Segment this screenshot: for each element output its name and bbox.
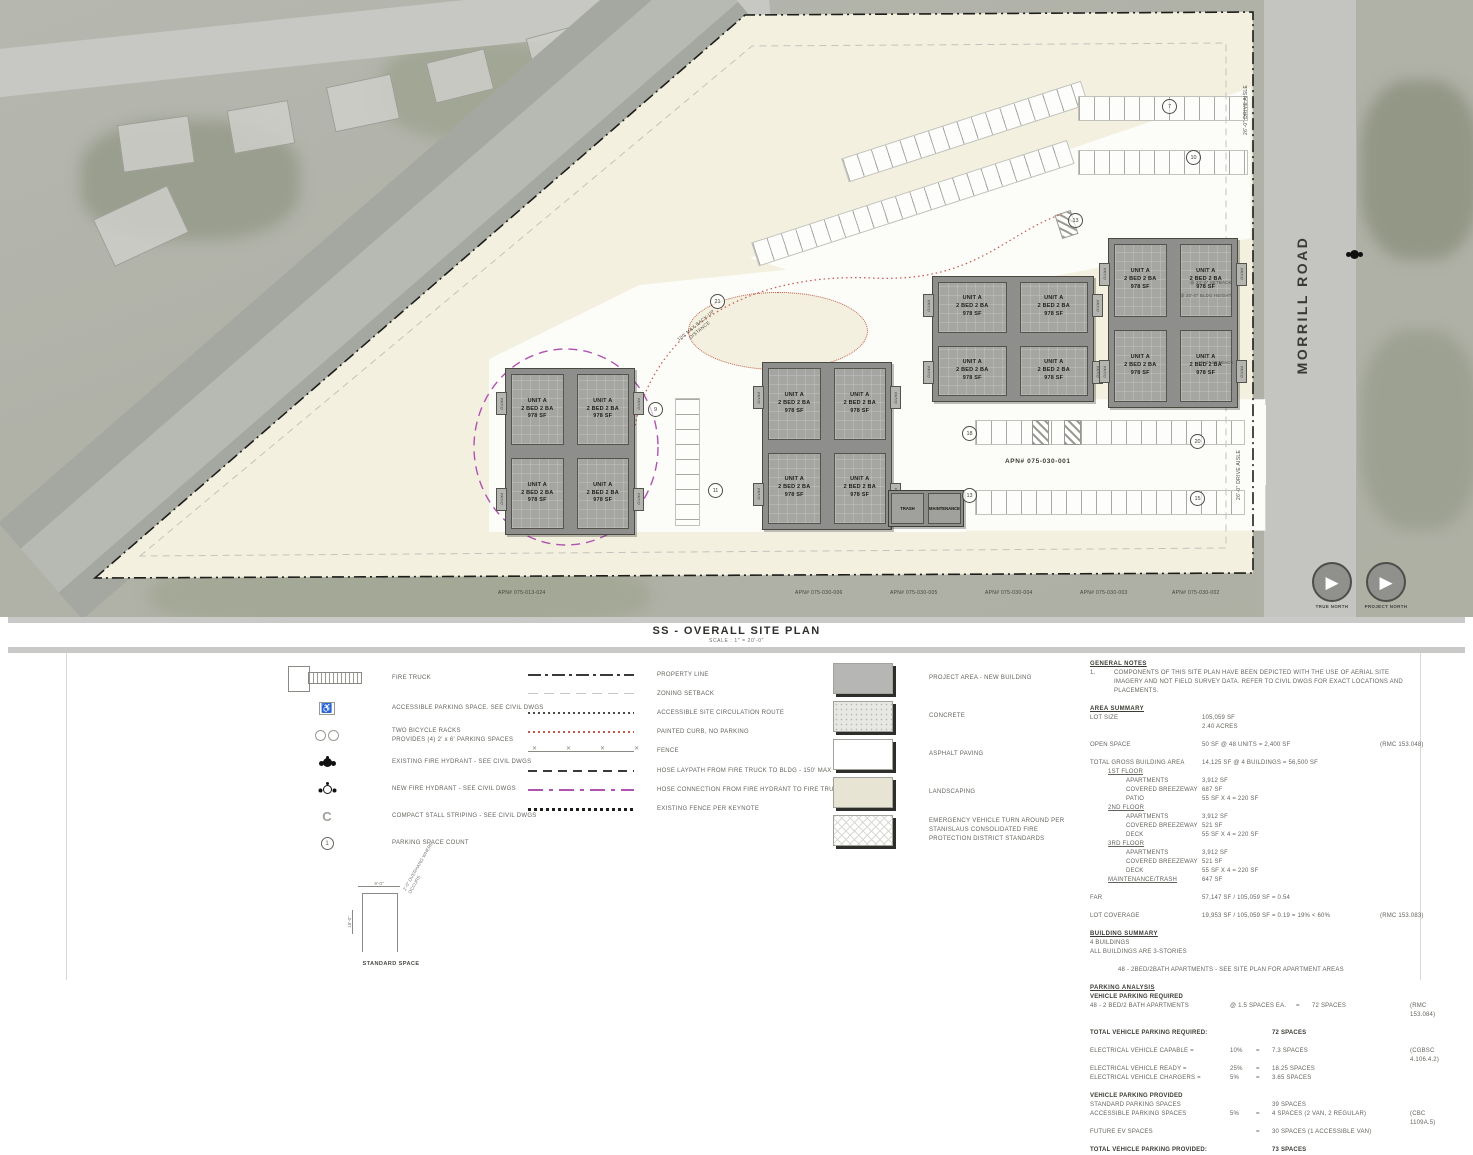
legend-line-label: ACCESSIBLE SITE CIRCULATION ROUTE <box>657 710 784 716</box>
row-label: LOT COVERAGE <box>1090 912 1202 921</box>
row-eq: = <box>1256 1110 1272 1119</box>
legend-hatch-swatch <box>833 663 893 694</box>
area-summary-row: FAR 57,147 SF / 105,059 SF = 0.54 <box>1090 894 1430 903</box>
unit-name: UNIT A <box>1131 268 1150 276</box>
row-label: APARTMENTS <box>1126 777 1202 786</box>
legend-line-sample <box>528 727 634 737</box>
legend-hatch-label: LANDSCAPING <box>929 788 975 797</box>
unit-name: UNIT A <box>785 476 804 484</box>
trash-maintenance-building: TRASH MAINTENANCE <box>888 490 964 527</box>
unit-area: 978 SF <box>1196 370 1215 378</box>
title-strip: SS - OVERALL SITE PLAN SCALE : 1" = 20'-… <box>0 617 1473 653</box>
parking-count-badge: 11 <box>708 483 723 498</box>
true-north-arrow: ▶ TRUE NORTH <box>1308 562 1356 609</box>
unit-area: 978 SF <box>593 413 612 421</box>
stall-outline <box>362 893 398 952</box>
total-label: TOTAL VEHICLE PARKING PROVIDED: <box>1090 1146 1272 1155</box>
apn-parcel-label: APN# 075-030-003 <box>1080 590 1128 596</box>
unit-beds: 2 BED 2 BA <box>587 490 619 498</box>
row-label: 48 - 2 BED/2 BATH APARTMENTS <box>1090 1002 1230 1011</box>
site-plan: PATIO PATIO PATIO PATIO UNIT A2 BED 2 BA… <box>0 0 1473 617</box>
row-label: APARTMENTS <box>1126 849 1202 858</box>
patio-tab: PATIO <box>496 392 507 415</box>
parking-count-badge: 13 <box>1068 213 1083 228</box>
row-eq: = <box>1256 1128 1272 1137</box>
legend-line-label: EXISTING FENCE PER KEYNOTE <box>657 806 759 812</box>
row-label: APARTMENTS <box>1126 813 1202 822</box>
parking-count-badge: 15 <box>1190 491 1205 506</box>
legend-symbol-label: FIRE TRUCK <box>392 674 431 683</box>
building-summary-line: 4 BUILDINGS <box>1090 939 1430 948</box>
legend-hatch-swatch <box>833 739 893 770</box>
row-label: ELECTRICAL VEHICLE READY = <box>1090 1065 1230 1074</box>
row-value: 72 SPACES <box>1312 1002 1410 1011</box>
legend-symbol-icon <box>288 782 366 798</box>
area-summary-heading: AREA SUMMARY <box>1090 705 1430 714</box>
apn-parcel-label: APN# 075-030-004 <box>985 590 1033 596</box>
legend-hatch-label: CONCRETE <box>929 712 965 721</box>
legend-hatch-swatch <box>833 815 893 846</box>
north-arrow-icon: ▶ <box>1366 562 1406 602</box>
legend-line-sample <box>528 785 634 795</box>
apn-parcel-label: APN# 075-030-006 <box>795 590 843 596</box>
row-label: DECK <box>1126 867 1202 876</box>
parking-count-badge: 21 <box>710 294 725 309</box>
unit-area: 978 SF <box>963 375 982 383</box>
area-summary-row: DECK 55 SF X 4 = 220 SF <box>1090 831 1430 840</box>
title-rule-top <box>8 617 1465 623</box>
row-label: TOTAL GROSS BUILDING AREA <box>1090 759 1202 768</box>
apartment-unit: UNIT A2 BED 2 BA978 SF <box>577 458 630 529</box>
driveway-entrance <box>1248 405 1266 485</box>
legend-hatch-swatch <box>833 777 893 808</box>
legend-line-row: HOSE LAYPATH FROM FIRE TRUCK TO BLDG - 1… <box>528 761 873 780</box>
apartment-unit: UNIT A2 BED 2 BA978 SF <box>834 368 887 440</box>
legend-area: FIRE TRUCK ACCESSIBLE PARKING SPACE. SEE… <box>0 653 1473 986</box>
unit-beds: 2 BED 2 BA <box>778 484 810 492</box>
row-value: 55 SF X 4 = 220 SF <box>1202 795 1380 804</box>
legend-line-row: PAINTED CURB, NO PARKING <box>528 723 873 742</box>
project-north-label: PROJECT NORTH <box>1362 604 1410 609</box>
row-label: ELECTRICAL VEHICLE CHARGERS = <box>1090 1074 1230 1083</box>
legend-line-label: PROPERTY LINE <box>657 672 709 678</box>
unit-beds: 2 BED 2 BA <box>1038 367 1070 375</box>
parking-row: FUTURE EV SPACES = 30 SPACES (1 ACCESSIB… <box>1090 1128 1430 1137</box>
unit-area: 978 SF <box>850 408 869 416</box>
sheet-border-left <box>66 653 67 980</box>
building-4: PATIO PATIO PATIO PATIO UNIT A2 BED 2 BA… <box>1108 238 1238 408</box>
legend-line-sample <box>528 708 634 718</box>
unit-beds: 2 BED 2 BA <box>1124 362 1156 370</box>
apartment-unit: UNIT A2 BED 2 BA978 SF <box>768 453 821 525</box>
sheet-title: SS - OVERALL SITE PLAN <box>0 625 1473 637</box>
row-code: (CBC 1109A.5) <box>1410 1110 1436 1128</box>
unit-name: UNIT A <box>1044 295 1063 303</box>
parking-provided-table: STANDARD PARKING SPACES 39 SPACES ACCESS… <box>1090 1101 1430 1137</box>
row-label: 1ST FLOOR <box>1108 768 1202 777</box>
unit-beds: 2 BED 2 BA <box>1038 303 1070 311</box>
row-label: DECK <box>1126 831 1202 840</box>
legend-line-sample <box>528 766 634 776</box>
row-value: 39 SPACES <box>1272 1101 1410 1110</box>
legend-line-label: FENCE <box>657 748 679 754</box>
parking-row: ELECTRICAL VEHICLE CAPABLE = 10% = 7.3 S… <box>1090 1047 1430 1065</box>
area-summary-table: LOT SIZE 105,059 SF2.40 ACRES OPEN SPACE… <box>1090 714 1430 921</box>
row-eq: = <box>1256 1065 1272 1074</box>
parking-row: STANDARD PARKING SPACES 39 SPACES <box>1090 1101 1430 1110</box>
legend-line-row: HOSE CONNECTION FROM FIRE HYDRANT TO FIR… <box>528 780 873 799</box>
legend-symbol-icon <box>288 661 366 695</box>
legend-symbol-label: EXISTING FIRE HYDRANT - SEE CIVIL DWGS <box>392 758 531 767</box>
patio-tab: PATIO <box>1236 263 1247 286</box>
legend-line-sample <box>528 670 634 680</box>
parking-row: 48 - 2 BED/2 BATH APARTMENTS @ 1.5 SPACE… <box>1090 1002 1430 1020</box>
legend-hatch-label: ASPHALT PAVING <box>929 750 983 759</box>
row-value: 30 SPACES (1 ACCESSIBLE VAN) <box>1272 1128 1410 1137</box>
unit-area: 978 SF <box>1044 375 1063 383</box>
legend-symbol-label: TWO BICYCLE RACKSPROVIDES (4) 2' x 6' PA… <box>392 727 513 745</box>
patio-tab: PATIO <box>753 386 764 409</box>
row-code: (RMC 153.084) <box>1410 1002 1435 1020</box>
legend-line-sample <box>528 746 634 756</box>
parking-stalls <box>1078 150 1248 175</box>
unit-name: UNIT A <box>1044 359 1063 367</box>
unit-area: 978 SF <box>850 492 869 500</box>
row-value: 3.65 SPACES <box>1272 1074 1410 1083</box>
legend-symbol-label: NEW FIRE HYDRANT - SEE CIVIL DWGS <box>392 785 516 794</box>
area-summary-row: TOTAL GROSS BUILDING AREA 14,125 SF @ 4 … <box>1090 759 1430 768</box>
standard-space-label: STANDARD SPACE <box>336 961 446 967</box>
apn-site-label: APN# 075-030-001 <box>1005 458 1071 465</box>
apartment-unit: UNIT A2 BED 2 BA978 SF <box>1020 346 1089 397</box>
row-code: (CGBSC 4.106.4.2) <box>1410 1047 1439 1065</box>
note-number: 1. <box>1090 669 1114 696</box>
sheet-scale: SCALE : 1" = 20'-0" <box>0 638 1473 644</box>
apartment-unit: UNIT A2 BED 2 BA978 SF <box>511 374 564 445</box>
row-value: 18.25 SPACES <box>1272 1065 1410 1074</box>
legend-hatch-row: LANDSCAPING <box>833 773 1083 811</box>
unit-name: UNIT A <box>528 398 547 406</box>
parking-row: ACCESSIBLE PARKING SPACES 5% = 4 SPACES … <box>1090 1110 1430 1128</box>
apartment-unit: UNIT A2 BED 2 BA978 SF <box>938 346 1007 397</box>
area-summary-row: APARTMENTS 3,912 SF <box>1090 813 1430 822</box>
parking-total-provided: TOTAL VEHICLE PARKING PROVIDED: 73 SPACE… <box>1090 1146 1430 1155</box>
legend-hatch-label: EMERGENCY VEHICLE TURN AROUND PER STANIS… <box>929 817 1069 844</box>
area-summary-row: APARTMENTS 3,912 SF <box>1090 777 1430 786</box>
apn-parcel-label: APN# 075-030-005 <box>890 590 938 596</box>
parking-stalls <box>975 490 1245 515</box>
legend-hatch-swatch <box>833 701 893 732</box>
row-value: 4 SPACES (2 VAN, 2 REGULAR) <box>1272 1110 1410 1119</box>
legend-line-row: FENCE <box>528 742 873 761</box>
unit-area: 978 SF <box>593 497 612 505</box>
row-code: (RMC 153.048) <box>1380 741 1430 750</box>
area-summary-row: MAINTENANCE/TRASH 647 SF <box>1090 876 1430 885</box>
stall-width-dim: 9'-0" <box>358 881 400 887</box>
legend-line-label: ZONING SETBACK <box>657 691 714 697</box>
area-summary-row: 2ND FLOOR <box>1090 804 1430 813</box>
legend-symbol-icon <box>288 755 366 771</box>
row-rate: 5% <box>1230 1110 1256 1119</box>
north-arrow-icon: ▶ <box>1312 562 1352 602</box>
apn-parcel-label: APN# 075-030-002 <box>1172 590 1220 596</box>
stall-depth-dim: 18'-0" <box>347 910 353 934</box>
legend-symbol-icon <box>288 726 366 746</box>
parking-row: ELECTRICAL VEHICLE CHARGERS = 5% = 3.65 … <box>1090 1074 1430 1083</box>
unit-name: UNIT A <box>850 392 869 400</box>
unit-beds: 2 BED 2 BA <box>1124 276 1156 284</box>
area-summary-row: 3RD FLOOR <box>1090 840 1430 849</box>
patio-tab: PATIO <box>1236 360 1247 383</box>
drawing-sheet: PATIO PATIO PATIO PATIO UNIT A2 BED 2 BA… <box>0 0 1473 986</box>
legend-symbol-icon <box>288 836 366 852</box>
morrill-road-surface <box>1263 0 1357 617</box>
unit-area: 978 SF <box>785 492 804 500</box>
parking-count-badge: 13 <box>962 488 977 503</box>
area-summary-row: 1ST FLOOR <box>1090 768 1430 777</box>
unit-beds: 2 BED 2 BA <box>521 490 553 498</box>
parking-provided-subheading: VEHICLE PARKING PROVIDED <box>1090 1092 1430 1101</box>
morrill-road-label: MORRILL ROAD <box>1294 236 1310 375</box>
parking-row: ELECTRICAL VEHICLE READY = 25% = 18.25 S… <box>1090 1065 1430 1074</box>
unit-name: UNIT A <box>528 482 547 490</box>
row-value: 57,147 SF / 105,059 SF = 0.54 <box>1202 894 1380 903</box>
row-value: 19,953 SF / 105,059 SF = 0.19 = 19% < 60… <box>1202 912 1380 921</box>
legend-hatch-row: PROJECT AREA - NEW BUILDING <box>833 659 1083 697</box>
row-rate: 25% <box>1230 1065 1256 1074</box>
patio-tab: PATIO <box>1099 360 1110 383</box>
patio-tab: PATIO <box>496 488 507 511</box>
row-label: FUTURE EV SPACES <box>1090 1128 1230 1137</box>
unit-name: UNIT A <box>850 476 869 484</box>
legend-hatch-row: CONCRETE <box>833 697 1083 735</box>
row-value: 55 SF X 4 = 220 SF <box>1202 867 1380 876</box>
unit-name: UNIT A <box>1196 268 1215 276</box>
unit-area: 978 SF <box>963 311 982 319</box>
row-value: 521 SF <box>1202 822 1380 831</box>
row-eq: = <box>1256 1074 1272 1083</box>
legend-hatch-row: ASPHALT PAVING <box>833 735 1083 773</box>
building-2: PATIO PATIO PATIO PATIO UNIT A2 BED 2 BA… <box>762 362 892 530</box>
patio-tab: PATIO <box>923 361 934 384</box>
unit-beds: 2 BED 2 BA <box>844 400 876 408</box>
total-value: 73 SPACES <box>1272 1146 1410 1155</box>
row-label: STANDARD PARKING SPACES <box>1090 1101 1230 1110</box>
unit-area: 978 SF <box>1044 311 1063 319</box>
row-value: 50 SF @ 48 UNITS = 2,400 SF <box>1202 741 1380 750</box>
building-summary-callout: 48 - 2BED/2BATH APARTMENTS - SEE SITE PL… <box>1118 966 1430 975</box>
row-label: MAINTENANCE/TRASH <box>1108 876 1202 885</box>
legend-symbol-label: COMPACT STALL STRIPING - SEE CIVIL DWGS <box>392 812 537 821</box>
legend-line-row: ACCESSIBLE SITE CIRCULATION ROUTE <box>528 703 873 722</box>
row-rate: @ 1.5 SPACES EA. <box>1230 1002 1296 1011</box>
area-summary-row: PATIO 55 SF X 4 = 220 SF <box>1090 795 1430 804</box>
patio-tab: PATIO <box>633 392 644 415</box>
area-summary-row: COVERED BREEZEWAY 521 SF <box>1090 822 1430 831</box>
parking-analysis-heading: PARKING ANALYSIS <box>1090 984 1430 993</box>
legend-line-sample <box>528 804 634 814</box>
patio-tab: PATIO <box>633 488 644 511</box>
row-label: LOT SIZE <box>1090 714 1202 723</box>
parking-count-badge: 10 <box>1186 150 1201 165</box>
drive-aisle-dim: 26'-0" DRIVE AISLE <box>1236 450 1242 500</box>
legend-line-row: ZONING SETBACK <box>528 684 873 703</box>
general-notes-heading: GENERAL NOTES <box>1090 660 1430 669</box>
legend-line-label: HOSE LAYPATH FROM FIRE TRUCK TO BLDG - 1… <box>657 768 832 774</box>
unit-area: 978 SF <box>528 497 547 505</box>
area-summary-row: DECK 55 SF X 4 = 220 SF <box>1090 867 1430 876</box>
row-value: 3,912 SF <box>1202 849 1380 858</box>
legend-hatch-label: PROJECT AREA - NEW BUILDING <box>929 674 1032 683</box>
aerial-vegetation-patch <box>1360 330 1473 530</box>
row-eq: = <box>1256 1047 1272 1056</box>
legend-line-sample <box>528 689 634 699</box>
building-summary-line: ALL BUILDINGS ARE 3-STORIES <box>1090 948 1430 957</box>
unit-beds: 2 BED 2 BA <box>956 367 988 375</box>
row-label: PATIO <box>1126 795 1202 804</box>
unit-area: 978 SF <box>1196 284 1215 292</box>
unit-area: 978 SF <box>528 413 547 421</box>
bldg-height-dim: @ 20'-0" BLDG HEIGHT <box>1180 293 1232 298</box>
row-label: OPEN SPACE <box>1090 741 1202 750</box>
row-rate: 5% <box>1230 1074 1256 1083</box>
aerial-vegetation-patch <box>1360 80 1473 260</box>
parking-required-subheading: VEHICLE PARKING REQUIRED <box>1090 993 1430 1002</box>
apartment-unit: UNIT A2 BED 2 BA978 SF <box>938 282 1007 333</box>
patio-tab: PATIO <box>923 294 934 317</box>
ev-stall-hatch <box>1064 420 1081 445</box>
row-value: 521 SF <box>1202 858 1380 867</box>
row-eq: = <box>1296 1002 1312 1011</box>
row-value: 647 SF <box>1202 876 1380 885</box>
unit-beds: 2 BED 2 BA <box>844 484 876 492</box>
legend-line-row: EXISTING FENCE PER KEYNOTE <box>528 799 873 818</box>
legend-line-label: PAINTED CURB, NO PARKING <box>657 729 749 735</box>
unit-area: 978 SF <box>1131 370 1150 378</box>
legend-symbol-icon <box>288 809 366 825</box>
area-summary-row: APARTMENTS 3,912 SF <box>1090 849 1430 858</box>
total-value: 72 SPACES <box>1272 1029 1410 1038</box>
row-code: (RMC 153.083) <box>1380 912 1430 921</box>
fire-hydrant-icon <box>1350 250 1359 259</box>
note-text: COMPONENTS OF THIS SITE PLAN HAVE BEEN D… <box>1114 669 1414 696</box>
parking-total-required: TOTAL VEHICLE PARKING REQUIRED: 72 SPACE… <box>1090 1029 1430 1038</box>
drive-aisle-dim: 26'-0" DRIVE AISLE <box>1243 85 1249 135</box>
standard-space-diagram: 9'-0" 18'-0" 2'-0" OVERHANG WHERE OCCURS… <box>336 879 476 975</box>
unit-beds: 2 BED 2 BA <box>521 406 553 414</box>
apartment-unit: UNIT A2 BED 2 BA978 SF <box>511 458 564 529</box>
row-label: 2ND FLOOR <box>1108 804 1202 813</box>
building-1: PATIO PATIO PATIO PATIO UNIT A2 BED 2 BA… <box>505 368 635 535</box>
apartment-unit: UNIT A2 BED 2 BA978 SF <box>1114 244 1167 317</box>
unit-beds: 2 BED 2 BA <box>956 303 988 311</box>
row-value: 14,125 SF @ 4 BUILDINGS = 56,500 SF <box>1202 759 1380 768</box>
area-summary-row: LOT COVERAGE 19,953 SF / 105,059 SF = 0.… <box>1090 912 1430 921</box>
parking-count-badge: 9 <box>648 402 663 417</box>
unit-name: UNIT A <box>593 398 612 406</box>
parking-count-badge: 7 <box>1162 99 1177 114</box>
aerial-house <box>117 115 195 173</box>
apartment-unit: UNIT A2 BED 2 BA978 SF <box>834 453 887 525</box>
project-north-arrow: ▶ PROJECT NORTH <box>1362 562 1410 609</box>
building-summary-heading: BUILDING SUMMARY <box>1090 930 1430 939</box>
parking-count-badge: 20 <box>1190 434 1205 449</box>
legend-hatch-row: EMERGENCY VEHICLE TURN AROUND PER STANIS… <box>833 811 1083 849</box>
area-summary-row: COVERED BREEZEWAY 521 SF <box>1090 858 1430 867</box>
patio-tab: PATIO <box>890 386 901 409</box>
unit-name: UNIT A <box>1131 354 1150 362</box>
parking-stalls <box>675 398 700 526</box>
apn-parcel-label: APN# 075-013-024 <box>498 590 546 596</box>
row-value: 55 SF X 4 = 220 SF <box>1202 831 1380 840</box>
row-label: ACCESSIBLE PARKING SPACES <box>1090 1110 1230 1119</box>
row-label: COVERED BREEZEWAY <box>1126 822 1202 831</box>
unit-area: 978 SF <box>1131 284 1150 292</box>
patio-tab: PATIO <box>1092 294 1103 317</box>
apartment-unit: UNIT A2 BED 2 BA978 SF <box>768 368 821 440</box>
true-north-label: TRUE NORTH <box>1308 604 1356 609</box>
building-3: PATIO PATIO PATIO PATIO UNIT A2 BED 2 BA… <box>932 276 1094 402</box>
area-summary-row: OPEN SPACE 50 SF @ 48 UNITS = 2,400 SF (… <box>1090 741 1430 750</box>
trash-room-label: TRASH <box>891 493 924 524</box>
unit-name: UNIT A <box>963 359 982 367</box>
row-label: COVERED BREEZEWAY <box>1126 786 1202 795</box>
legend-linetypes: PROPERTY LINE ZONING SETBACK ACCESSIBLE … <box>528 653 873 819</box>
area-summary-row: COVERED BREEZEWAY 687 SF <box>1090 786 1430 795</box>
row-value: 105,059 SF2.40 ACRES <box>1202 714 1380 732</box>
total-label: TOTAL VEHICLE PARKING REQUIRED: <box>1090 1029 1272 1038</box>
unit-area: 978 SF <box>785 408 804 416</box>
legend-symbol-icon <box>288 699 366 719</box>
area-summary-row: LOT SIZE 105,059 SF2.40 ACRES <box>1090 714 1430 732</box>
unit-name: UNIT A <box>785 392 804 400</box>
general-note-1: 1. COMPONENTS OF THIS SITE PLAN HAVE BEE… <box>1090 669 1430 696</box>
patio-tab: PATIO <box>753 483 764 506</box>
row-value: 7.3 SPACES <box>1272 1047 1410 1056</box>
parking-count-badge: 18 <box>962 426 977 441</box>
legend-line-row: PROPERTY LINE <box>528 665 873 684</box>
ev-stall-hatch <box>1032 420 1049 445</box>
row-label: 3RD FLOOR <box>1108 840 1202 849</box>
unit-beds: 2 BED 2 BA <box>778 400 810 408</box>
row-label: ELECTRICAL VEHICLE CAPABLE = <box>1090 1047 1230 1056</box>
legend-symbol-label: ACCESSIBLE PARKING SPACE. SEE CIVIL DWGS <box>392 704 544 713</box>
unit-name: UNIT A <box>593 482 612 490</box>
row-value: 687 SF <box>1202 786 1380 795</box>
apartment-unit: UNIT A2 BED 2 BA978 SF <box>1114 330 1167 403</box>
apartment-unit: UNIT A2 BED 2 BA978 SF <box>1180 330 1233 403</box>
apartment-unit: UNIT A2 BED 2 BA978 SF <box>1020 282 1089 333</box>
setback-dim: 15'-0" SETBACK <box>1198 360 1234 365</box>
unit-beds: 2 BED 2 BA <box>587 406 619 414</box>
patio-tab: PATIO <box>1099 263 1110 286</box>
setback-dim: @ 20'-0" SETBACK <box>1190 280 1232 285</box>
row-label: COVERED BREEZEWAY <box>1126 858 1202 867</box>
parking-required-table: 48 - 2 BED/2 BATH APARTMENTS @ 1.5 SPACE… <box>1090 1002 1430 1020</box>
row-value: 3,912 SF <box>1202 813 1380 822</box>
row-value: 3,912 SF <box>1202 777 1380 786</box>
apartment-unit: UNIT A2 BED 2 BA978 SF <box>577 374 630 445</box>
notes-column: GENERAL NOTES 1. COMPONENTS OF THIS SITE… <box>1090 653 1430 1155</box>
row-rate: 10% <box>1230 1047 1256 1056</box>
row-label: FAR <box>1090 894 1202 903</box>
parking-ev-table: ELECTRICAL VEHICLE CAPABLE = 10% = 7.3 S… <box>1090 1047 1430 1083</box>
legend-hatches: PROJECT AREA - NEW BUILDING CONCRETE ASP… <box>833 653 1083 849</box>
maintenance-room-label: MAINTENANCE <box>928 493 961 524</box>
aerial-house <box>326 74 400 133</box>
unit-name: UNIT A <box>963 295 982 303</box>
